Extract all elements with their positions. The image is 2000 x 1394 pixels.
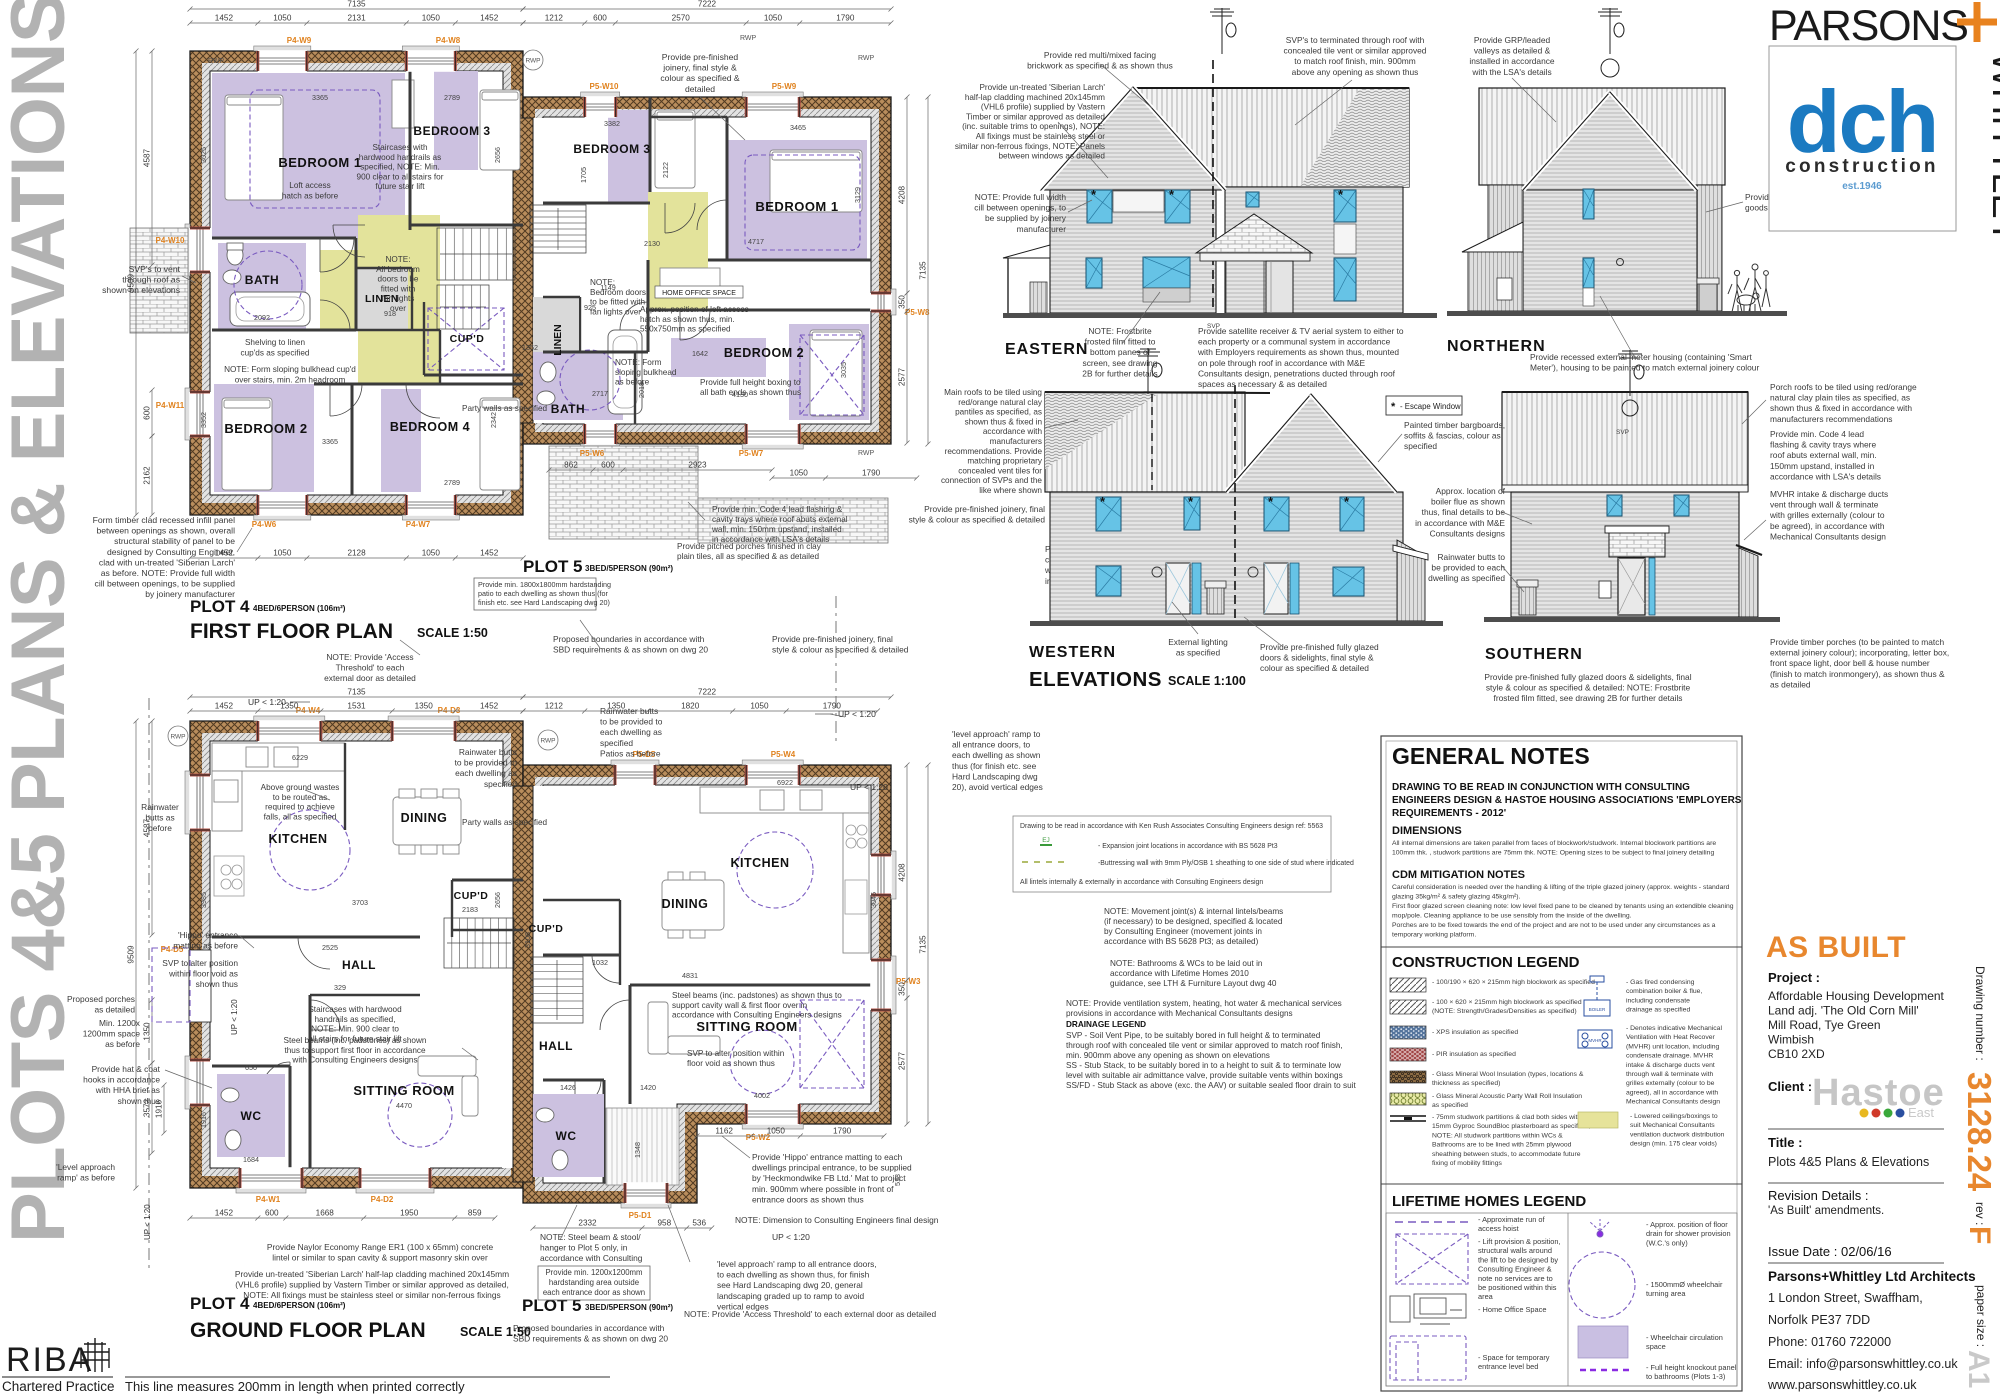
- svg-text:P4-W4: P4-W4: [296, 706, 321, 715]
- svg-text:4BED/6PERSON (106m²): 4BED/6PERSON (106m²): [253, 1301, 346, 1310]
- svg-text:P4-W7: P4-W7: [406, 520, 431, 529]
- svg-text:- PIR insulation as specified: - PIR insulation as specified: [1432, 1051, 1516, 1058]
- svg-text:Issue Date : 02/06/16: Issue Date : 02/06/16: [1768, 1244, 1892, 1259]
- svg-text:1684: 1684: [243, 1155, 259, 1164]
- svg-text:Provide pre-finished joinery,: Provide pre-finished joinery, finalstyle…: [772, 634, 909, 655]
- svg-text:7135: 7135: [919, 935, 928, 954]
- svg-text:UP < 1:20: UP < 1:20: [772, 1232, 810, 1242]
- svg-text:RWP: RWP: [858, 55, 875, 62]
- svg-text:4002: 4002: [754, 1091, 770, 1100]
- svg-text:SVP's to terminated through ro: SVP's to terminated through roof withcon…: [1284, 35, 1427, 77]
- svg-text:DIMENSIONS: DIMENSIONS: [1392, 825, 1462, 837]
- svg-text:est.1946: est.1946: [1842, 181, 1882, 192]
- svg-text:P4-W1: P4-W1: [256, 1195, 281, 1204]
- svg-text:7135: 7135: [347, 688, 366, 697]
- svg-text:Drawing number :: Drawing number :: [1973, 966, 1987, 1061]
- svg-text:P5-D1: P5-D1: [629, 1211, 652, 1220]
- svg-text:2131: 2131: [347, 14, 366, 23]
- svg-text:FIRST FLOOR PLAN: FIRST FLOOR PLAN: [190, 620, 393, 643]
- svg-text:2092: 2092: [254, 313, 270, 322]
- svg-text:3985: 3985: [199, 892, 208, 908]
- svg-text:BEDROOM 3: BEDROOM 3: [413, 124, 490, 138]
- svg-text:862: 862: [564, 461, 578, 470]
- svg-text:3128.24: 3128.24: [1961, 1072, 1998, 1192]
- svg-text:RWP: RWP: [525, 58, 540, 65]
- svg-text:536: 536: [692, 1219, 706, 1228]
- svg-text:- Expansion joint locations in: - Expansion joint locations in accordanc…: [1098, 843, 1278, 850]
- svg-text:Title :: Title :: [1768, 1135, 1802, 1150]
- svg-text:Proposed boundaries in accorda: Proposed boundaries in accordance withSB…: [553, 634, 708, 655]
- svg-text:CUP'D: CUP'D: [454, 890, 489, 902]
- svg-text:PLOT 4: PLOT 4: [190, 597, 250, 616]
- svg-text:2570: 2570: [672, 14, 691, 23]
- svg-text:BEDROOM 1: BEDROOM 1: [278, 155, 361, 170]
- svg-text:1668: 1668: [316, 1209, 335, 1218]
- svg-text:350: 350: [898, 982, 907, 996]
- svg-text:SOUTHERN: SOUTHERN: [1485, 646, 1583, 663]
- svg-text:RWP: RWP: [208, 58, 225, 65]
- svg-text:4208: 4208: [898, 185, 907, 204]
- svg-text:2162: 2162: [143, 466, 152, 485]
- svg-text:1950: 1950: [400, 1209, 419, 1218]
- svg-text:Provide un-treated 'Siberian L: Provide un-treated 'Siberian Larch' half…: [235, 1269, 509, 1300]
- svg-text:P5-W4: P5-W4: [771, 750, 796, 759]
- svg-text:7135: 7135: [347, 0, 366, 9]
- svg-text:7135: 7135: [919, 261, 928, 280]
- svg-text:1642: 1642: [692, 349, 708, 358]
- svg-text:Rainwater butts tobe provided: Rainwater butts tobe provided to eachdwe…: [1428, 552, 1505, 583]
- svg-text:PARSONS: PARSONS: [1769, 2, 1968, 50]
- svg-text:1452: 1452: [480, 549, 499, 558]
- svg-text:2923: 2923: [688, 461, 707, 470]
- svg-text:BEDROOM 3: BEDROOM 3: [573, 142, 650, 156]
- svg-text:2789: 2789: [444, 93, 460, 102]
- svg-text:Plots 4&5 Plans & Elevations: Plots 4&5 Plans & Elevations: [1768, 1155, 1929, 1169]
- svg-text:EJ: EJ: [1042, 837, 1050, 844]
- svg-text:paper size :: paper size :: [1974, 1285, 1988, 1347]
- svg-text:1 London Street, Swaffham,: 1 London Street, Swaffham,: [1768, 1291, 1923, 1305]
- svg-text:650: 650: [245, 1063, 257, 1072]
- svg-text:RWP: RWP: [740, 35, 757, 42]
- svg-text:2577: 2577: [898, 1051, 907, 1070]
- svg-text:3365: 3365: [312, 93, 328, 102]
- svg-text:3382: 3382: [604, 119, 620, 128]
- svg-text:4208: 4208: [898, 863, 907, 882]
- svg-text:'Level approachramp' as before: 'Level approachramp' as before: [56, 1162, 115, 1183]
- svg-text:Loft accesshatch as before: Loft accesshatch as before: [282, 181, 339, 201]
- svg-text:External lightingas specified: External lightingas specified: [1168, 637, 1228, 658]
- svg-text:SCALE 1:100: SCALE 1:100: [1168, 674, 1246, 688]
- svg-text:600: 600: [143, 406, 152, 420]
- svg-text:www.parsonswhittley.co.uk: www.parsonswhittley.co.uk: [1767, 1378, 1917, 1392]
- svg-text:2122: 2122: [661, 162, 670, 178]
- svg-text:HALL: HALL: [342, 958, 376, 972]
- svg-text:Shelving to linencup'ds as spe: Shelving to linencup'ds as specified: [241, 338, 310, 358]
- svg-text:Project :: Project :: [1768, 970, 1820, 985]
- svg-text:HALL: HALL: [539, 1039, 573, 1053]
- svg-text:1452: 1452: [215, 1209, 234, 1218]
- svg-text:859: 859: [468, 1209, 482, 1218]
- svg-text:BEDROOM 1: BEDROOM 1: [755, 199, 838, 214]
- svg-text:-Buttressing wall with 9mm Ply: -Buttressing wall with 9mm Ply/OSB 1 she…: [1098, 860, 1354, 867]
- svg-text:BATH: BATH: [245, 273, 279, 287]
- svg-text:2130: 2130: [644, 239, 660, 248]
- svg-text:2656: 2656: [493, 147, 502, 163]
- svg-text:BEDROOM 2: BEDROOM 2: [224, 421, 307, 436]
- svg-text:Parsons+Whittley Ltd Architect: Parsons+Whittley Ltd Architects: [1768, 1269, 1976, 1284]
- svg-text:Provide pitched porches finish: Provide pitched porches finished in clay…: [677, 542, 822, 561]
- svg-text:RWP: RWP: [540, 738, 555, 745]
- svg-text:Provide pre-finished fully gla: Provide pre-finished fully glazed doors …: [1484, 672, 1691, 703]
- svg-text:1050: 1050: [750, 702, 769, 711]
- svg-text:rev :: rev :: [1973, 1202, 1987, 1225]
- svg-text:'Hippo' entrancematting as bef: 'Hippo' entrancematting as before: [173, 930, 238, 951]
- svg-text:- XPS insulation as specified: - XPS insulation as specified: [1432, 1029, 1518, 1036]
- svg-text:2342: 2342: [489, 412, 498, 428]
- svg-text:2128: 2128: [347, 549, 366, 558]
- svg-text:1790: 1790: [862, 469, 881, 478]
- svg-text:1452: 1452: [480, 702, 499, 711]
- svg-text:1426: 1426: [560, 1083, 576, 1092]
- svg-text:1452: 1452: [215, 14, 234, 23]
- svg-text:9509: 9509: [127, 945, 136, 964]
- svg-text:P4-D2: P4-D2: [371, 1195, 394, 1204]
- svg-text:6229: 6229: [292, 753, 308, 762]
- svg-text:WHITTLEY: WHITTLEY: [1984, 52, 2000, 244]
- svg-text:SCALE 1:50: SCALE 1:50: [417, 626, 488, 640]
- svg-text:1050: 1050: [422, 14, 441, 23]
- svg-text:UP < 1:20: UP < 1:20: [838, 709, 876, 719]
- svg-text:3465: 3465: [790, 123, 806, 132]
- svg-text:SITTING ROOM: SITTING ROOM: [696, 1019, 797, 1034]
- svg-text:1452: 1452: [215, 702, 234, 711]
- svg-text:This line measures 200mm in le: This line measures 200mm in length when …: [125, 1379, 465, 1394]
- svg-text:ELEVATIONS: ELEVATIONS: [1029, 668, 1162, 691]
- svg-text:East: East: [1908, 1105, 1934, 1120]
- svg-text:2332: 2332: [578, 1219, 597, 1228]
- svg-text:Provide GRP/leadedvalleys as d: Provide GRP/leadedvalleys as detailed &i…: [1469, 35, 1555, 77]
- svg-text:P4-W6: P4-W6: [252, 520, 277, 529]
- svg-text:NOTE: Form sloping bulkhead cu: NOTE: Form sloping bulkhead cup'dover st…: [224, 365, 356, 385]
- svg-text:3045: 3045: [869, 892, 878, 908]
- svg-text:NOTE: Provide 'AccessThreshold: NOTE: Provide 'AccessThreshold' to eache…: [324, 652, 416, 683]
- svg-text:- Denotes indicative Mechanica: - Denotes indicative MechanicalVentilati…: [1626, 1025, 1722, 1106]
- svg-text:3352: 3352: [199, 412, 208, 428]
- svg-text:BEDROOM 2: BEDROOM 2: [724, 346, 804, 360]
- svg-text:1820: 1820: [681, 702, 700, 711]
- svg-text:1352: 1352: [522, 343, 538, 352]
- svg-text:1050: 1050: [790, 469, 809, 478]
- svg-text:Provide red multi/mixed facin: Provide red multi/mixed facingbrickwork …: [1027, 50, 1173, 71]
- svg-text:2789: 2789: [444, 478, 460, 487]
- svg-text:Provide pre-finished fully gla: Provide pre-finished fully glazeddoors &…: [1260, 642, 1379, 673]
- svg-text:P5-W9: P5-W9: [772, 82, 797, 91]
- svg-text:3BED/5PERSON (90m²): 3BED/5PERSON (90m²): [585, 1303, 673, 1312]
- svg-text:'level approach' ramp toall en: 'level approach' ramp toall entrance doo…: [952, 729, 1043, 792]
- svg-text:DRAINAGE LEGEND: DRAINAGE LEGEND: [1066, 1020, 1146, 1029]
- svg-text:1350: 1350: [415, 702, 434, 711]
- svg-text:UP < 1:20: UP < 1:20: [143, 1204, 152, 1240]
- svg-text:PLOT 5: PLOT 5: [523, 557, 583, 576]
- svg-text:1790: 1790: [836, 14, 855, 23]
- svg-text:2577: 2577: [898, 367, 907, 386]
- svg-text:CUP'D: CUP'D: [529, 923, 564, 935]
- svg-text:1350: 1350: [143, 1022, 152, 1041]
- svg-text:SITTING ROOM: SITTING ROOM: [353, 1083, 454, 1098]
- svg-text:GENERAL NOTES: GENERAL NOTES: [1392, 743, 1590, 769]
- svg-text:SVP - Soil Vent Pipe, to be su: SVP - Soil Vent Pipe, to be suitably bor…: [1066, 1031, 1356, 1090]
- svg-text:1705: 1705: [579, 167, 588, 183]
- svg-text:P5-W7: P5-W7: [739, 449, 764, 458]
- svg-text:Proposed boundaries in accorda: Proposed boundaries in accordance withSB…: [513, 1323, 668, 1344]
- svg-text:1050: 1050: [767, 1127, 786, 1136]
- svg-text:Provide un-treated 'Siberian L: Provide un-treated 'Siberian Larch'half-…: [955, 83, 1106, 161]
- svg-text:2717: 2717: [592, 389, 608, 398]
- svg-text:350: 350: [898, 295, 907, 309]
- svg-text:1452: 1452: [480, 14, 499, 23]
- svg-text:'As Built' amendments.: 'As Built' amendments.: [1768, 1205, 1884, 1217]
- svg-text:4831: 4831: [682, 971, 698, 980]
- svg-text:600: 600: [601, 461, 615, 470]
- svg-text:KITCHEN: KITCHEN: [268, 832, 327, 846]
- svg-text:Provide full height boxing toa: Provide full height boxing toall bath en…: [700, 378, 801, 397]
- svg-text:Client :: Client :: [1768, 1079, 1812, 1094]
- svg-text:Chartered Practice: Chartered Practice: [2, 1379, 115, 1394]
- svg-text:3703: 3703: [352, 898, 368, 907]
- svg-text:Drawing to be read in accordan: Drawing to be read in accordance with Ke…: [1020, 823, 1323, 830]
- svg-text:WC: WC: [556, 1129, 577, 1143]
- svg-text:1050: 1050: [273, 549, 292, 558]
- svg-text:NOTE: Movement joint(s) & inte: NOTE: Movement joint(s) & internal linte…: [1104, 907, 1283, 946]
- svg-text:LINEN: LINEN: [552, 324, 564, 356]
- svg-text:- Lift provision & position,st: - Lift provision & position,structural w…: [1478, 1237, 1561, 1301]
- svg-text:P4-W11: P4-W11: [156, 401, 185, 410]
- svg-text:EASTERN: EASTERN: [1005, 341, 1088, 358]
- svg-text:P4-W9: P4-W9: [287, 36, 312, 45]
- svg-text:UP < 1:20: UP < 1:20: [248, 697, 286, 707]
- svg-text:BEDROOM 4: BEDROOM 4: [390, 420, 470, 434]
- svg-text:UP < 1:20: UP < 1:20: [230, 999, 239, 1035]
- svg-text:1790: 1790: [833, 1127, 852, 1136]
- svg-text:3365: 3365: [322, 437, 338, 446]
- svg-text:1050: 1050: [273, 14, 292, 23]
- svg-text:3108: 3108: [523, 932, 532, 948]
- svg-text:PLOT 4: PLOT 4: [190, 1294, 250, 1313]
- svg-text:1032: 1032: [592, 958, 608, 967]
- svg-text:NOTE: Provide 'Access Threshol: NOTE: Provide 'Access Threshold' to each…: [684, 1309, 936, 1319]
- svg-text:1531: 1531: [347, 702, 366, 711]
- svg-text:P4-D3: P4-D3: [438, 706, 461, 715]
- svg-text:BOILER: BOILER: [1589, 1007, 1606, 1012]
- svg-text:GROUND FLOOR PLAN: GROUND FLOOR PLAN: [190, 1319, 426, 1342]
- svg-text:F: F: [1963, 1226, 1996, 1244]
- svg-text:6922: 6922: [777, 778, 793, 787]
- svg-text:1916: 1916: [199, 1112, 208, 1128]
- svg-text:P5-W6: P5-W6: [580, 449, 605, 458]
- svg-text:Provide min. 1200x1200mmhardst: Provide min. 1200x1200mmhardstanding are…: [543, 1268, 645, 1297]
- svg-text:WC: WC: [241, 1109, 262, 1123]
- svg-text:All lintels internally & exter: All lintels internally & externally in a…: [1020, 879, 1263, 886]
- svg-text:Party walls as specified: Party walls as specified: [462, 818, 548, 827]
- svg-text:1050: 1050: [422, 549, 441, 558]
- svg-text:Above ground wastesto be route: Above ground wastesto be routed asrequir…: [261, 783, 340, 821]
- svg-text:1212: 1212: [545, 14, 564, 23]
- svg-text:2525: 2525: [322, 943, 338, 952]
- svg-text:LIFETIME HOMES LEGEND: LIFETIME HOMES LEGEND: [1392, 1193, 1586, 1210]
- svg-text:3129: 3129: [853, 187, 862, 203]
- svg-text:1162: 1162: [715, 1127, 733, 1136]
- svg-text:HOME OFFICE SPACE: HOME OFFICE SPACE: [662, 290, 736, 297]
- svg-text:2183: 2183: [462, 905, 478, 914]
- svg-text:3BED/5PERSON (90m²): 3BED/5PERSON (90m²): [585, 564, 673, 573]
- svg-text:NOTE: Frostbritefrosted film f: NOTE: Frostbritefrosted film fitted tobo…: [1082, 326, 1158, 378]
- svg-text:Party walls as specified: Party walls as specified: [462, 404, 548, 413]
- svg-text:2656: 2656: [493, 892, 502, 908]
- svg-text:Norfolk PE37 7DD: Norfolk PE37 7DD: [1768, 1313, 1870, 1327]
- svg-text:Provide Naylor Economy Range E: Provide Naylor Economy Range ER1 (100 x …: [267, 1242, 494, 1263]
- svg-text:1050: 1050: [764, 14, 783, 23]
- svg-text:Rainwater buttsto be provided: Rainwater buttsto be provided toeach dwe…: [600, 706, 663, 758]
- svg-text:CONSTRUCTION LEGEND: CONSTRUCTION LEGEND: [1392, 954, 1580, 971]
- svg-text:600: 600: [265, 1209, 279, 1218]
- svg-text:CDM MITIGATION NOTES: CDM MITIGATION NOTES: [1392, 869, 1525, 881]
- svg-text:Revision Details :: Revision Details :: [1768, 1188, 1868, 1203]
- svg-text:RWP: RWP: [170, 734, 185, 741]
- svg-text:Email: info@parsonswhittley.co: Email: info@parsonswhittley.co.uk: [1768, 1357, 1958, 1371]
- svg-text:UP < 1:20: UP < 1:20: [850, 782, 888, 792]
- svg-text:SVP to alter position withinfl: SVP to alter position withinfloor void a…: [687, 1049, 785, 1068]
- svg-text:P4-W10: P4-W10: [156, 236, 185, 245]
- svg-text:4470: 4470: [396, 1101, 412, 1110]
- svg-text:Provide recessed external mete: Provide recessed external meter housing …: [1530, 352, 1759, 373]
- svg-text:Form timber clad recessed infi: Form timber clad recessed infill panelbe…: [93, 515, 236, 599]
- svg-text:4BED/6PERSON (106m²): 4BED/6PERSON (106m²): [253, 604, 346, 613]
- svg-text:Provide pre-finished joinery,: Provide pre-finished joinery, finalstyle…: [909, 504, 1046, 525]
- svg-text:1420: 1420: [640, 1083, 656, 1092]
- svg-text:DINING: DINING: [662, 897, 709, 911]
- svg-text:3025: 3025: [199, 147, 208, 163]
- svg-text:RIBA: RIBA: [6, 1341, 93, 1379]
- svg-text:DINING: DINING: [401, 811, 448, 825]
- svg-text:KITCHEN: KITCHEN: [730, 856, 789, 870]
- svg-text:MVHR intake & discharge ductsv: MVHR intake & discharge ductsvent throug…: [1769, 489, 1888, 541]
- svg-text:Provide min. Code 4 lead flash: Provide min. Code 4 lead flashing &cavit…: [711, 505, 848, 544]
- svg-text:3035: 3035: [839, 362, 848, 378]
- svg-text:1348: 1348: [633, 1142, 642, 1158]
- svg-text:WESTERN: WESTERN: [1029, 644, 1116, 661]
- svg-text:A1: A1: [1962, 1350, 1995, 1388]
- svg-text:MVHR: MVHR: [1588, 1038, 1602, 1043]
- svg-text:Phone: 01760 722000: Phone: 01760 722000: [1768, 1335, 1891, 1349]
- svg-text:P4-W8: P4-W8: [436, 36, 461, 45]
- svg-text:P5-W10: P5-W10: [590, 82, 619, 91]
- svg-text:- 100/190 × 620 × 215mm high b: - 100/190 × 620 × 215mm high blockwork a…: [1432, 979, 1595, 986]
- svg-text:Steel beams (inc. padstones) a: Steel beams (inc. padstones) as shownthu…: [284, 1036, 427, 1065]
- svg-text:7222: 7222: [698, 0, 717, 9]
- svg-text:4717: 4717: [748, 237, 764, 246]
- svg-text:Provide min. 1800x1800mm hards: Provide min. 1800x1800mm hardstandingpat…: [478, 580, 611, 607]
- svg-text:600: 600: [593, 14, 607, 23]
- svg-text:construction: construction: [1785, 156, 1938, 177]
- svg-text:CUP'D: CUP'D: [450, 333, 485, 345]
- svg-text:*: *: [1391, 401, 1396, 413]
- svg-text:NOTE: Dimension to Consulting: NOTE: Dimension to Consulting Engineers …: [735, 1215, 939, 1225]
- svg-text:PLOTS 4&5 PLANS & ELEVATIONS: PLOTS 4&5 PLANS & ELEVATIONS: [0, 0, 81, 1243]
- svg-text:1212: 1212: [545, 702, 564, 711]
- svg-text:- Escape Window: - Escape Window: [1400, 402, 1461, 411]
- svg-text:329: 329: [334, 983, 346, 992]
- svg-text:- Home Office Space: - Home Office Space: [1478, 1305, 1546, 1314]
- svg-text:7222: 7222: [698, 688, 717, 697]
- svg-text:- Full height knockout panelto: - Full height knockout panelto bathrooms…: [1646, 1363, 1737, 1381]
- svg-text:958: 958: [658, 1219, 672, 1228]
- svg-text:4587: 4587: [143, 148, 152, 167]
- svg-text:SVP: SVP: [1616, 429, 1629, 436]
- svg-text:AS BUILT: AS BUILT: [1766, 931, 1906, 964]
- svg-text:BATH: BATH: [551, 402, 585, 416]
- svg-text:RWP: RWP: [858, 450, 875, 457]
